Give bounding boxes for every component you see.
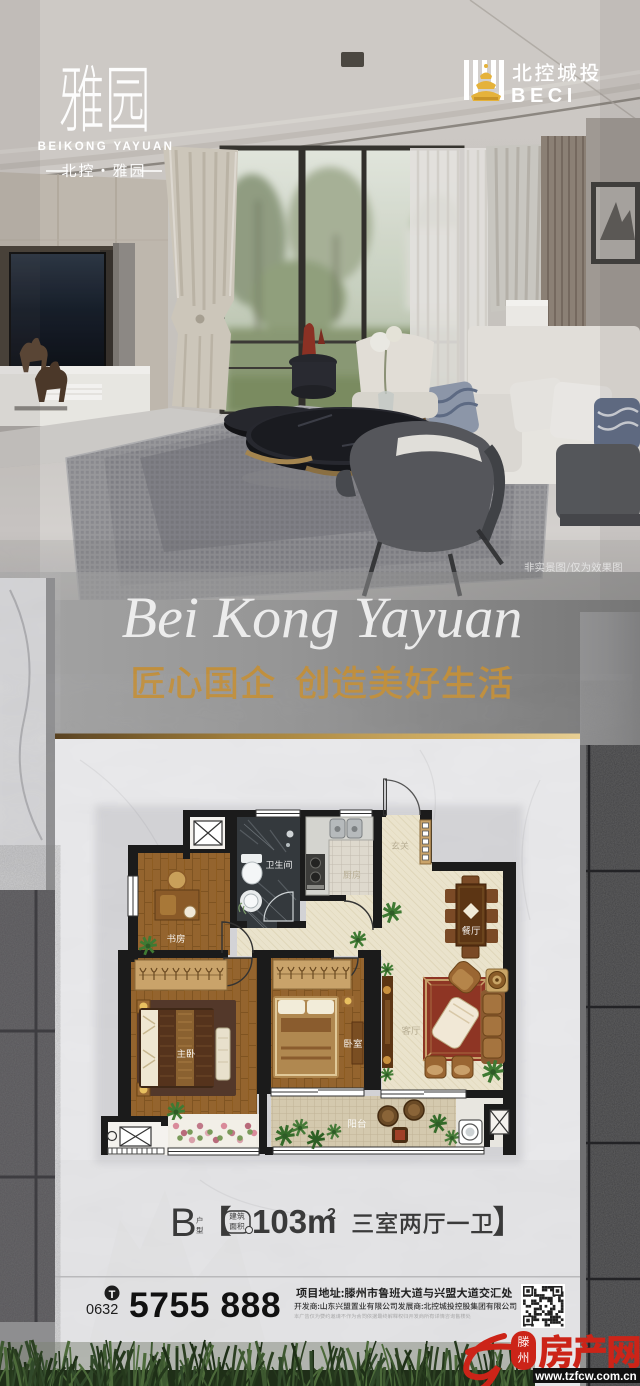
svg-text:T: T: [109, 1289, 116, 1301]
svg-text:BECI: BECI: [511, 85, 577, 107]
svg-text:103m: 103m: [252, 1203, 336, 1240]
svg-text:www.tzfcw.com.cn: www.tzfcw.com.cn: [534, 1371, 636, 1383]
svg-text:BEIKONG YAYUAN: BEIKONG YAYUAN: [38, 141, 175, 153]
svg-text:Bei Kong Yayuan: Bei Kong Yayuan: [122, 585, 523, 650]
svg-text:B: B: [170, 1201, 197, 1245]
svg-text:5755 888: 5755 888: [129, 1285, 281, 1325]
svg-text:0632: 0632: [86, 1302, 118, 1318]
svg-text:2: 2: [327, 1206, 336, 1223]
